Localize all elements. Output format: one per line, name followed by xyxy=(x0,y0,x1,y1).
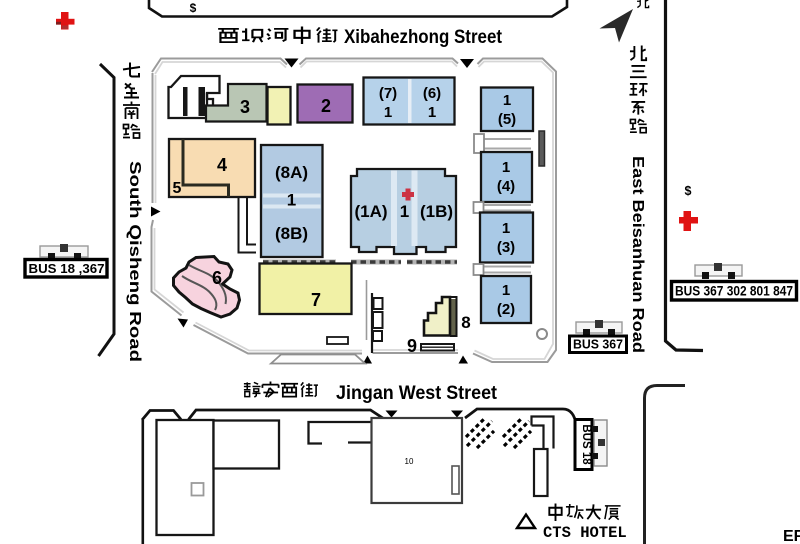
svg-text:8: 8 xyxy=(461,313,470,332)
svg-text:South Qisheng Road: South Qisheng Road xyxy=(126,161,143,362)
svg-text:10: 10 xyxy=(405,457,414,466)
svg-text:1: 1 xyxy=(287,191,296,210)
svg-text:BUS 18 ,367: BUS 18 ,367 xyxy=(29,261,105,276)
svg-text:1: 1 xyxy=(428,104,436,121)
svg-text:1: 1 xyxy=(502,159,510,176)
svg-text:$: $ xyxy=(190,1,197,15)
svg-text:6: 6 xyxy=(212,268,222,288)
svg-text:CTS HOTEL: CTS HOTEL xyxy=(543,524,627,542)
svg-text:$: $ xyxy=(685,184,692,198)
svg-text:(8A): (8A) xyxy=(275,163,308,182)
svg-text:(6): (6) xyxy=(423,85,441,102)
svg-text:4: 4 xyxy=(217,155,227,175)
svg-text:1: 1 xyxy=(400,202,409,221)
svg-text:(8B): (8B) xyxy=(275,224,308,243)
svg-text:(1A): (1A) xyxy=(354,202,387,221)
svg-text:9: 9 xyxy=(407,336,417,356)
svg-text:(7): (7) xyxy=(379,85,397,102)
svg-text:3: 3 xyxy=(240,97,250,117)
svg-text:1: 1 xyxy=(503,92,511,109)
svg-text:(2): (2) xyxy=(497,301,515,318)
svg-text:Xibahezhong Street: Xibahezhong Street xyxy=(344,26,502,48)
svg-text:(4): (4) xyxy=(497,178,515,195)
svg-text:BUS 367: BUS 367 xyxy=(573,338,623,352)
svg-text:1: 1 xyxy=(502,282,510,299)
svg-text:1: 1 xyxy=(502,220,510,237)
svg-text:1: 1 xyxy=(384,104,392,121)
svg-text:(1B): (1B) xyxy=(420,202,453,221)
svg-text:(5): (5) xyxy=(498,111,516,128)
svg-text:BUS 18: BUS 18 xyxy=(580,424,592,465)
svg-text:Jingan West Street: Jingan West Street xyxy=(336,382,497,404)
svg-text:2: 2 xyxy=(321,96,331,116)
svg-text:East Beisanhuan Road: East Beisanhuan Road xyxy=(629,156,646,353)
svg-text:5: 5 xyxy=(173,180,182,197)
svg-text:EF: EF xyxy=(783,528,800,544)
svg-text:7: 7 xyxy=(311,290,321,310)
svg-text:BUS 367 302 801 847: BUS 367 302 801 847 xyxy=(675,284,793,299)
svg-text:(3): (3) xyxy=(497,239,515,256)
